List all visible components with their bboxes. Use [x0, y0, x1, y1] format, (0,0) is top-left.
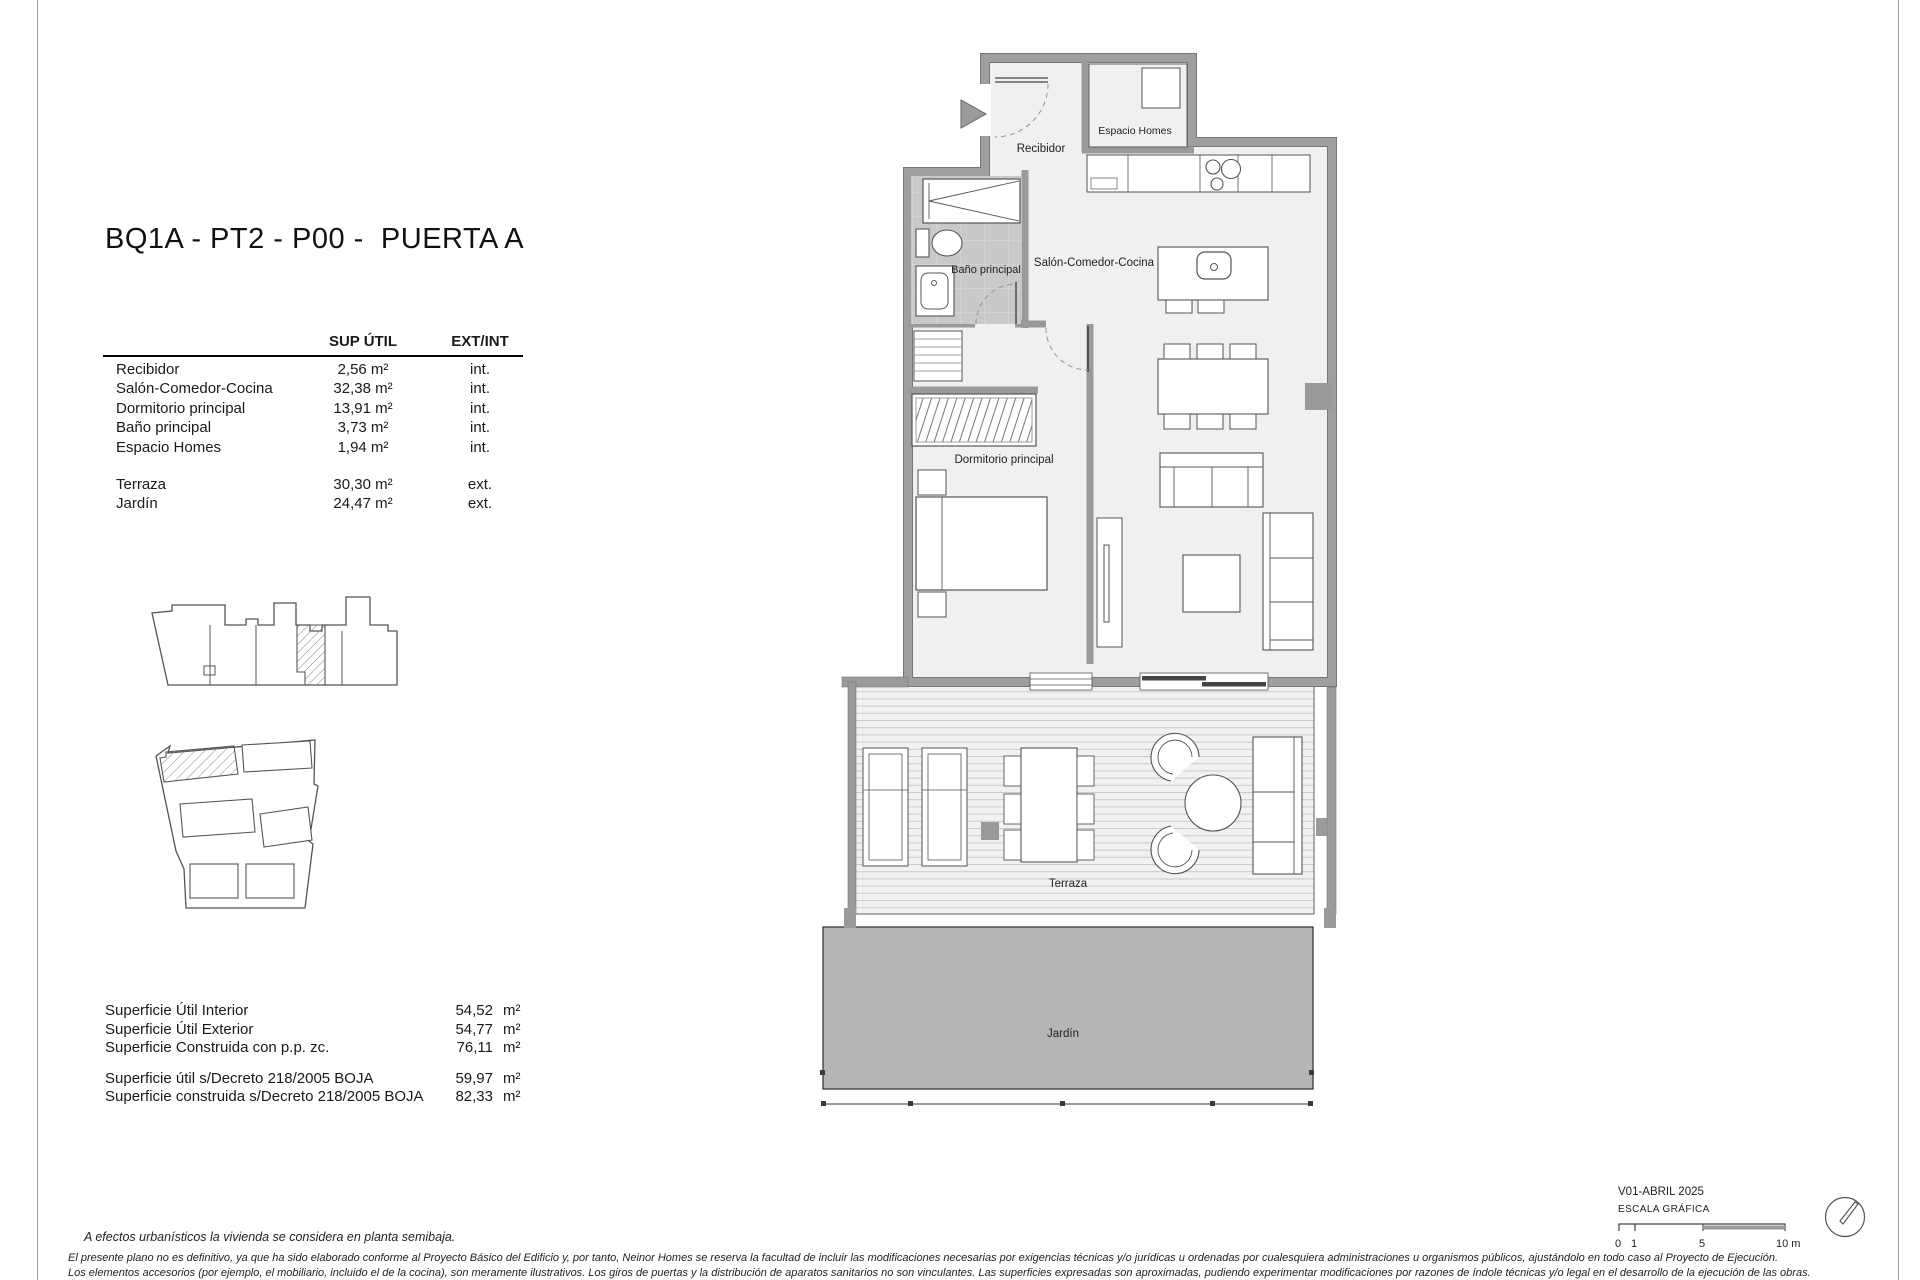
toilet	[916, 229, 962, 257]
table-row: Recibidor 2,56 m² int.	[103, 361, 523, 380]
row-label: Salón-Comedor-Cocina	[116, 380, 273, 397]
page-frame-left	[37, 0, 38, 1280]
shower-tray	[923, 179, 1020, 223]
terrace-daybed	[1253, 737, 1302, 874]
row-type: int.	[435, 419, 525, 436]
terrace-right-wall	[1327, 687, 1336, 914]
wall-radiator	[1316, 818, 1327, 836]
row-area: 1,94 m²	[283, 439, 443, 456]
label-dormitorio: Dormitorio principal	[954, 454, 1053, 466]
total-unit: m²	[503, 1039, 547, 1056]
total-value: 54,77	[385, 1021, 493, 1038]
row-label: Recibidor	[116, 361, 179, 378]
row-area: 30,30 m²	[283, 476, 443, 493]
label-espacio-homes: Espacio Homes	[1098, 125, 1172, 137]
total-unit: m²	[503, 1088, 547, 1105]
page-frame-right	[1898, 0, 1899, 1280]
label-jardin: Jardín	[1047, 1028, 1079, 1040]
row-label: Terraza	[116, 476, 166, 493]
row-area: 3,73 m²	[283, 419, 443, 436]
label-recibidor: Recibidor	[1017, 143, 1066, 155]
chaise-longue	[1263, 513, 1313, 650]
total-label: Superficie Útil Interior	[105, 1002, 248, 1019]
coffee-table	[1183, 555, 1240, 612]
hall-shelves	[914, 331, 962, 381]
total-value: 59,97	[385, 1070, 493, 1087]
key-plan-site	[150, 736, 365, 918]
row-label: Dormitorio principal	[116, 400, 245, 417]
garden-area	[823, 927, 1313, 1089]
table-row: Salón-Comedor-Cocina 32,38 m² int.	[103, 380, 523, 399]
page-title: BQ1A - PT2 - P00 - PUERTA A	[105, 223, 524, 256]
disclaimer-line-2: Los elementos accesorios (por ejemplo, e…	[68, 1266, 1868, 1280]
total-row: Superficie útil s/Decreto 218/2005 BOJA …	[105, 1070, 545, 1089]
total-value: 76,11	[385, 1039, 493, 1056]
espacio-homes-counter	[1142, 68, 1180, 108]
total-row: Superficie Construida con p.p. zc. 76,11…	[105, 1039, 545, 1058]
row-type: ext.	[435, 495, 525, 512]
bathroom-sink	[916, 266, 954, 316]
total-unit: m²	[503, 1002, 547, 1019]
row-area: 24,47 m²	[283, 495, 443, 512]
row-label: Baño principal	[116, 419, 211, 436]
row-type: int.	[435, 439, 525, 456]
totals-block: Superficie Útil Interior 54,52 m² Superf…	[105, 1002, 545, 1107]
row-type: int.	[435, 400, 525, 417]
terrace-dining	[1004, 748, 1094, 862]
total-label: Superficie útil s/Decreto 218/2005 BOJA	[105, 1070, 373, 1087]
scale-bar	[1618, 1222, 1798, 1234]
version-label: V01-ABRIL 2025	[1618, 1186, 1704, 1198]
floor-plan: Recibidor Espacio Homes Baño principal S…	[820, 40, 1350, 1115]
sofa	[1160, 453, 1263, 507]
bedroom-window	[1030, 673, 1092, 690]
total-label: Superficie construida s/Decreto 218/2005…	[105, 1088, 424, 1105]
disclaimer-line-1: El presente plano no es definitivo, ya q…	[68, 1251, 1868, 1266]
column-header-sup-util: SUP ÚTIL	[283, 333, 443, 350]
row-label: Jardín	[116, 495, 158, 512]
label-terraza: Terraza	[1049, 878, 1088, 890]
row-type: int.	[435, 380, 525, 397]
wall-pillar	[1305, 383, 1332, 410]
table-row: Terraza 30,30 m² ext.	[103, 476, 523, 495]
sun-lounger	[863, 748, 908, 866]
terrace-left-wall	[848, 682, 856, 914]
scale-ticks: 0 1 5 10 m	[1618, 1238, 1808, 1252]
floorplan-sheet: { "header": { "title": "BQ1A - PT2 - P00…	[0, 0, 1920, 1280]
label-salon: Salón-Comedor-Cocina	[1034, 257, 1155, 269]
table-row: Baño principal 3,73 m² int.	[103, 419, 523, 438]
total-row: Superficie Útil Exterior 54,77 m²	[105, 1021, 545, 1040]
total-label: Superficie Construida con p.p. zc.	[105, 1039, 329, 1056]
row-area: 13,91 m²	[283, 400, 443, 417]
compass-icon	[1822, 1194, 1868, 1240]
dining-table	[1158, 344, 1268, 429]
scale-tick: 0	[1615, 1238, 1621, 1250]
total-value: 82,33	[385, 1088, 493, 1105]
total-row: Superficie construida s/Decreto 218/2005…	[105, 1088, 545, 1107]
scale-title: ESCALA GRÁFICA	[1618, 1204, 1710, 1215]
column-header-ext-int: EXT/INT	[435, 333, 525, 350]
total-row: Superficie Útil Interior 54,52 m²	[105, 1002, 545, 1021]
key-plan-building	[150, 588, 410, 698]
scale-tick: 1	[1631, 1238, 1637, 1250]
kitchen-counter	[1087, 155, 1310, 192]
row-type: ext.	[435, 476, 525, 493]
row-area: 32,38 m²	[283, 380, 443, 397]
sliding-door	[1140, 673, 1268, 690]
total-unit: m²	[503, 1021, 547, 1038]
table-row: Espacio Homes 1,94 m² int.	[103, 439, 523, 458]
total-value: 54,52	[385, 1002, 493, 1019]
scale-tick: 10 m	[1776, 1238, 1800, 1250]
label-bano: Baño principal	[951, 264, 1021, 276]
side-table	[981, 822, 999, 840]
table-row: Jardín 24,47 m² ext.	[103, 495, 523, 514]
row-label: Espacio Homes	[116, 439, 221, 456]
table-row: Dormitorio principal 13,91 m² int.	[103, 400, 523, 419]
urban-note: A efectos urbanísticos la vivienda se co…	[84, 1230, 455, 1244]
sun-lounger	[922, 748, 967, 866]
areas-table-header: SUP ÚTIL EXT/INT	[103, 333, 523, 355]
disclaimer: El presente plano no es definitivo, ya q…	[68, 1251, 1868, 1280]
tv-unit	[1097, 518, 1122, 647]
row-type: int.	[435, 361, 525, 378]
total-label: Superficie Útil Exterior	[105, 1021, 253, 1038]
row-area: 2,56 m²	[283, 361, 443, 378]
total-unit: m²	[503, 1070, 547, 1087]
areas-table: SUP ÚTIL EXT/INT Recibidor 2,56 m² int. …	[103, 333, 523, 515]
wardrobe	[912, 394, 1036, 446]
scale-tick: 5	[1699, 1238, 1705, 1250]
